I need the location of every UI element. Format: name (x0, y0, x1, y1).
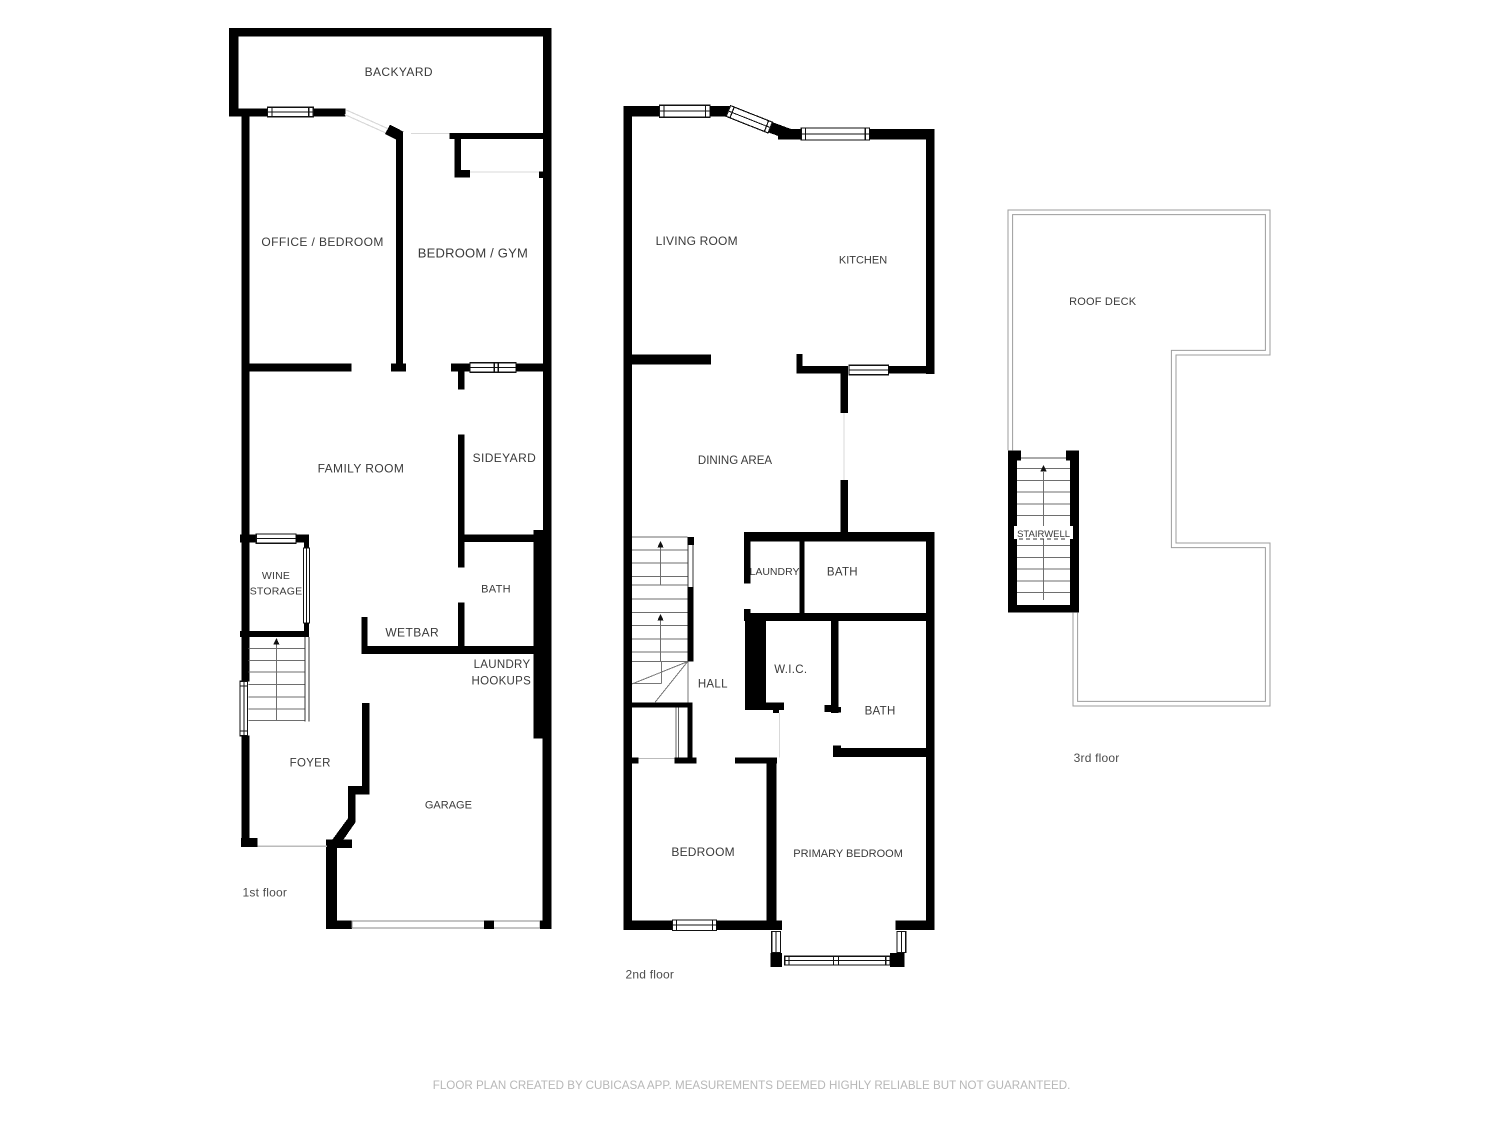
svg-text:FOYER: FOYER (290, 757, 331, 769)
svg-text:LIVING ROOM: LIVING ROOM (656, 234, 738, 248)
svg-text:BATH: BATH (827, 567, 858, 579)
svg-text:STORAGE: STORAGE (250, 585, 303, 597)
svg-text:HALL: HALL (698, 678, 728, 690)
svg-text:3rd floor: 3rd floor (1074, 751, 1120, 765)
svg-text:FLOOR PLAN CREATED BY CUBICASA: FLOOR PLAN CREATED BY CUBICASA APP. MEAS… (433, 1079, 1071, 1092)
svg-text:DINING AREA: DINING AREA (698, 455, 772, 467)
svg-text:HOOKUPS: HOOKUPS (471, 676, 531, 688)
svg-text:LAUNDRY: LAUNDRY (750, 566, 800, 578)
svg-text:LAUNDRY: LAUNDRY (474, 659, 531, 671)
svg-text:BACKYARD: BACKYARD (365, 65, 433, 79)
svg-text:KITCHEN: KITCHEN (839, 254, 887, 266)
svg-text:BEDROOM / GYM: BEDROOM / GYM (418, 246, 528, 261)
svg-text:SIDEYARD: SIDEYARD (473, 451, 537, 465)
svg-text:FAMILY ROOM: FAMILY ROOM (318, 461, 405, 475)
svg-text:WINE: WINE (262, 570, 290, 582)
svg-text:BATH: BATH (865, 706, 896, 718)
svg-text:2nd floor: 2nd floor (626, 968, 675, 982)
svg-text:ROOF DECK: ROOF DECK (1069, 296, 1137, 308)
svg-text:1st floor: 1st floor (243, 886, 288, 900)
svg-text:WETBAR: WETBAR (385, 625, 439, 639)
svg-text:GARAGE: GARAGE (425, 800, 472, 812)
svg-text:BEDROOM: BEDROOM (671, 845, 734, 859)
svg-text:PRIMARY BEDROOM: PRIMARY BEDROOM (793, 848, 903, 860)
svg-text:W.I.C.: W.I.C. (774, 664, 807, 676)
svg-text:BATH: BATH (481, 584, 511, 596)
svg-text:OFFICE / BEDROOM: OFFICE / BEDROOM (261, 235, 383, 249)
